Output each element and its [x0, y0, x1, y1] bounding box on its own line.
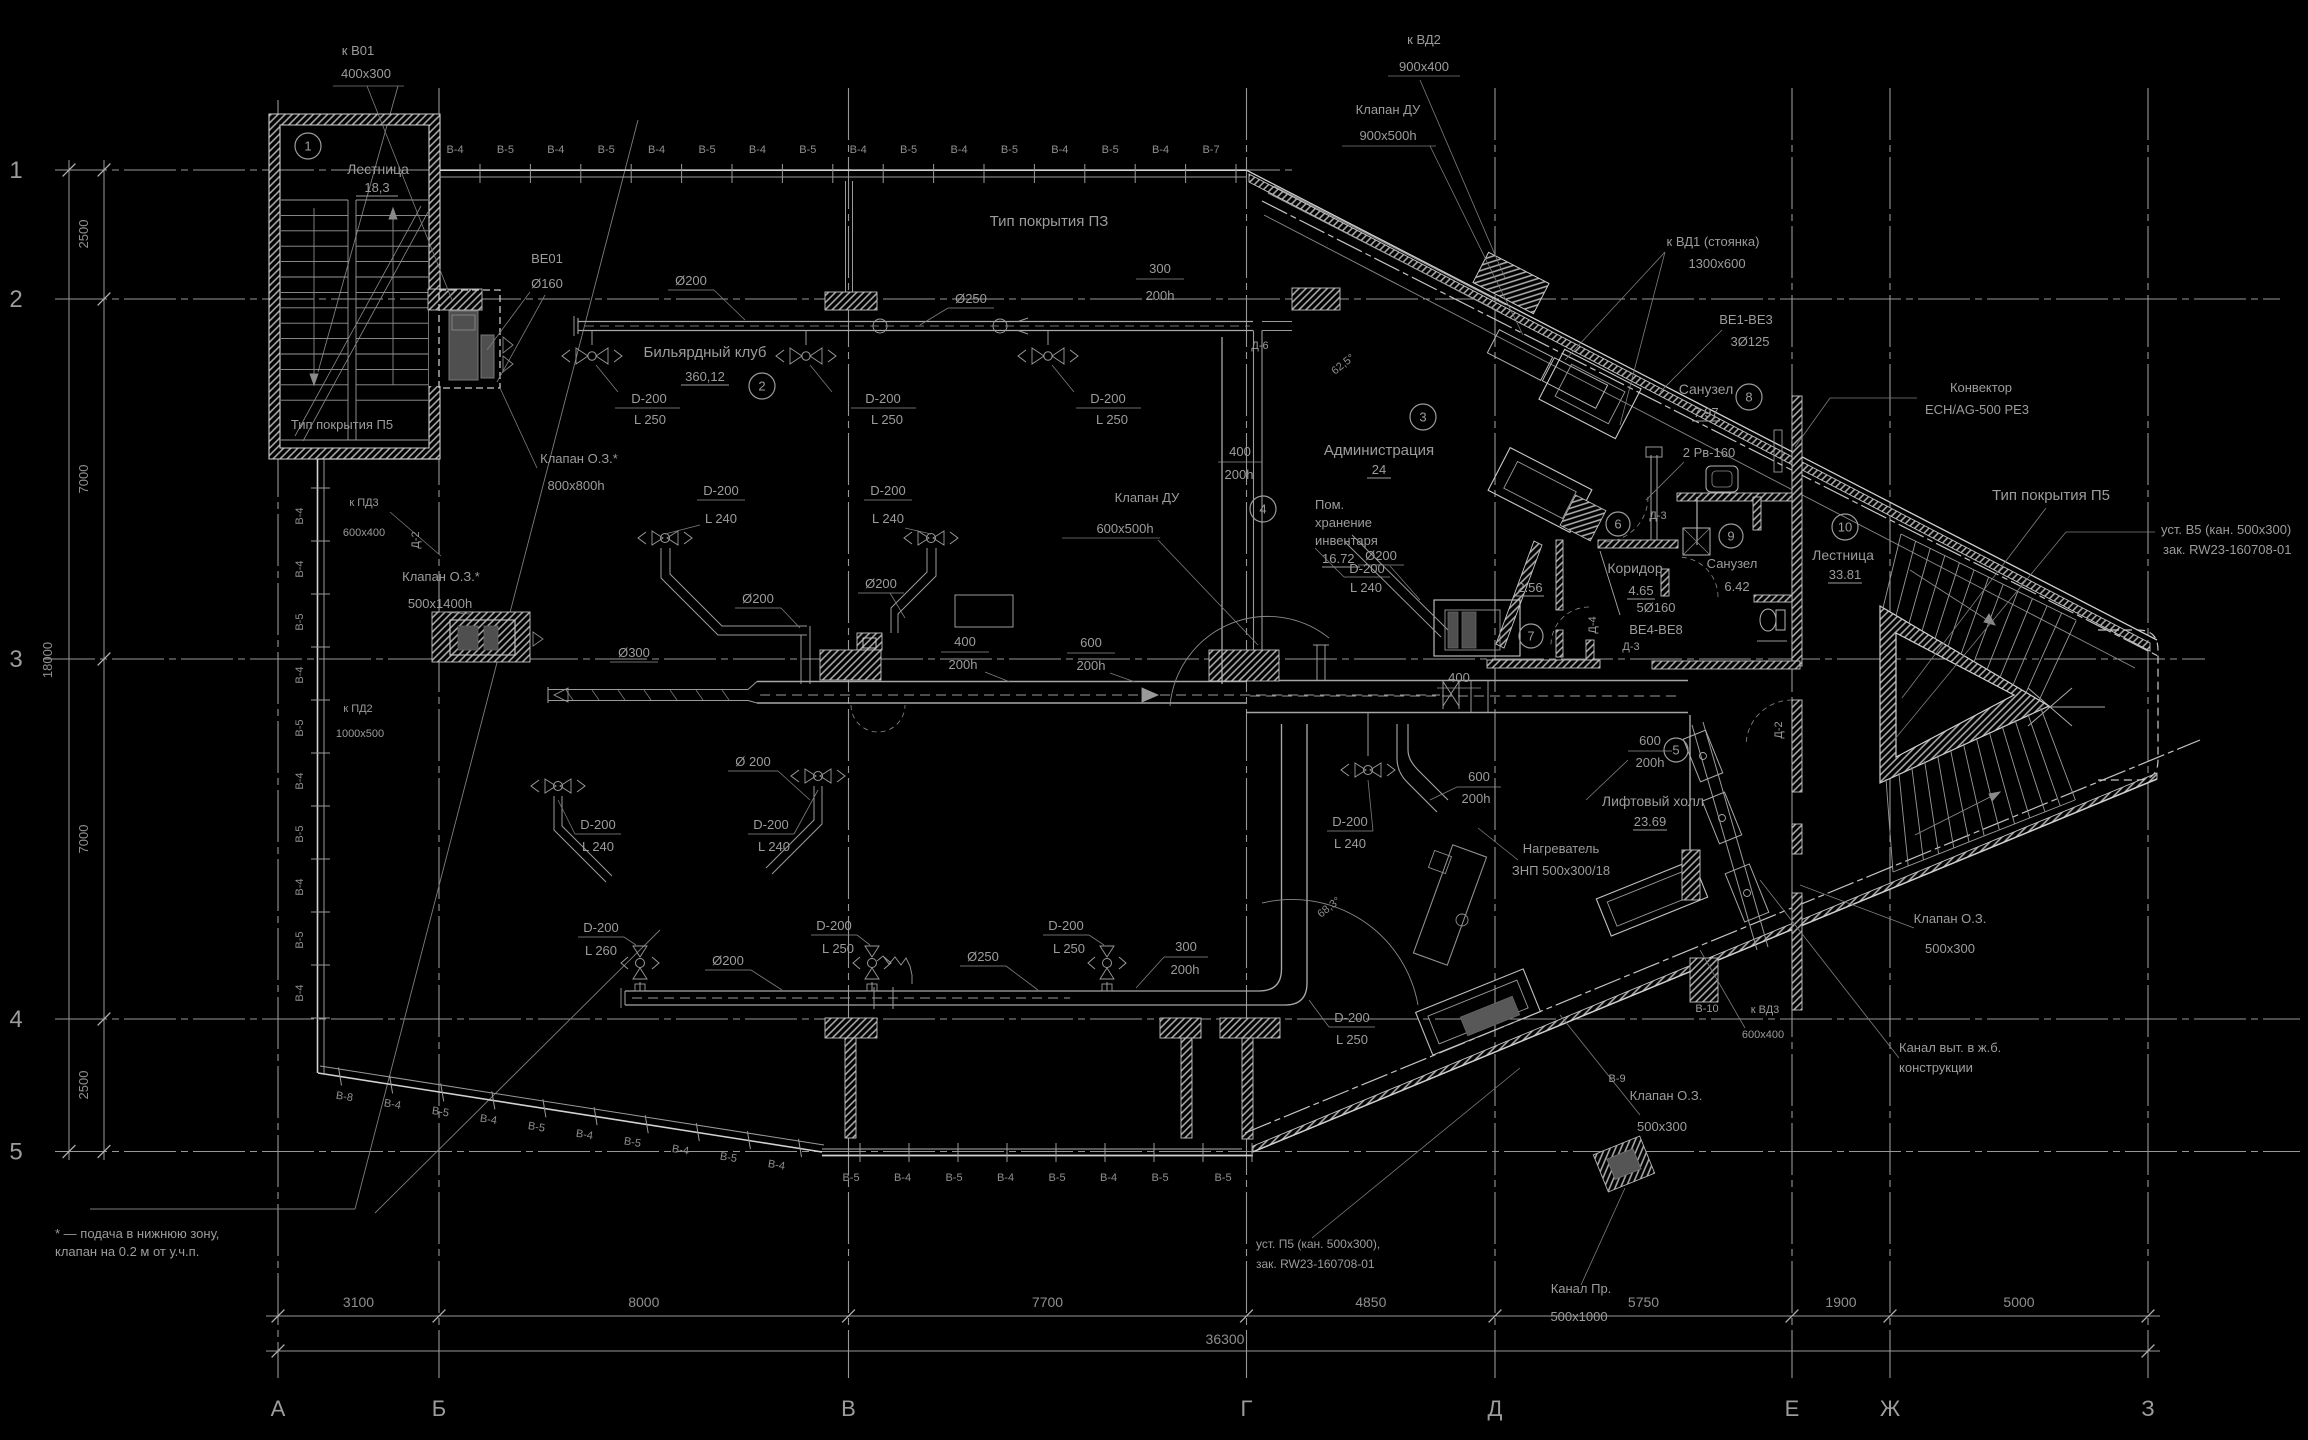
svg-text:В-5: В-5 — [1151, 1172, 1168, 1184]
svg-text:В-4: В-4 — [294, 666, 306, 683]
svg-text:В-9: В-9 — [1608, 1073, 1625, 1085]
svg-text:Ø200: Ø200 — [712, 953, 744, 968]
svg-text:А: А — [271, 1396, 286, 1421]
svg-text:500x1400h: 500x1400h — [408, 596, 472, 611]
svg-text:L 240: L 240 — [758, 839, 790, 854]
svg-text:600: 600 — [1080, 635, 1102, 650]
svg-text:D-200: D-200 — [816, 918, 851, 933]
svg-text:4: 4 — [1259, 502, 1266, 517]
svg-text:* — подача в нижнюю зону,: * — подача в нижнюю зону, — [55, 1226, 219, 1241]
svg-text:7: 7 — [1527, 629, 1534, 644]
svg-text:200h: 200h — [1077, 658, 1106, 673]
svg-text:зак. RW23-160708-01: зак. RW23-160708-01 — [2163, 542, 2291, 557]
svg-text:к ВД2: к ВД2 — [1407, 32, 1441, 47]
svg-text:200h: 200h — [949, 657, 978, 672]
svg-text:L 250: L 250 — [1096, 412, 1128, 427]
svg-text:L 250: L 250 — [1336, 1032, 1368, 1047]
svg-text:33.81: 33.81 — [1829, 567, 1862, 582]
svg-text:Администрация: Администрация — [1324, 442, 1434, 459]
svg-text:Ø200: Ø200 — [675, 273, 707, 288]
svg-text:В-5: В-5 — [698, 144, 715, 156]
svg-text:D-200: D-200 — [753, 817, 788, 832]
svg-text:Д-3: Д-3 — [1622, 641, 1639, 653]
svg-text:В-4: В-4 — [997, 1172, 1014, 1184]
svg-text:400: 400 — [1229, 444, 1251, 459]
svg-text:L 240: L 240 — [872, 511, 904, 526]
svg-text:5: 5 — [9, 1139, 22, 1166]
svg-text:9: 9 — [1727, 529, 1734, 544]
svg-text:D-200: D-200 — [703, 483, 738, 498]
svg-text:500x300: 500x300 — [1925, 941, 1975, 956]
svg-text:Ж: Ж — [1880, 1396, 1901, 1421]
svg-text:Ø200: Ø200 — [865, 576, 897, 591]
svg-text:600x500h: 600x500h — [1096, 521, 1153, 536]
svg-text:конструкции: конструкции — [1899, 1060, 1973, 1075]
svg-text:L 250: L 250 — [871, 412, 903, 427]
svg-text:5750: 5750 — [1628, 1294, 1659, 1310]
svg-text:500x1000: 500x1000 — [1550, 1309, 1607, 1324]
svg-text:Нагреватель: Нагреватель — [1523, 841, 1600, 856]
svg-text:D-200: D-200 — [1332, 814, 1367, 829]
svg-text:L 240: L 240 — [1334, 836, 1366, 851]
svg-text:Ø200: Ø200 — [742, 591, 774, 606]
svg-text:L 250: L 250 — [1053, 941, 1085, 956]
svg-text:4850: 4850 — [1355, 1294, 1386, 1310]
svg-text:L 240: L 240 — [582, 839, 614, 854]
svg-text:D-200: D-200 — [631, 391, 666, 406]
svg-text:Санузел: Санузел — [1707, 556, 1758, 571]
svg-text:В-4: В-4 — [950, 144, 967, 156]
svg-text:В-5: В-5 — [598, 144, 615, 156]
svg-text:В-5: В-5 — [1102, 144, 1119, 156]
svg-text:В-4: В-4 — [850, 144, 867, 156]
svg-text:В-4: В-4 — [294, 984, 306, 1001]
svg-text:уст. П5 (кан. 500x300),: уст. П5 (кан. 500x300), — [1256, 1237, 1380, 1251]
svg-text:В-4: В-4 — [1051, 144, 1068, 156]
svg-text:Тип покрытия ПЗ: Тип покрытия ПЗ — [990, 213, 1109, 230]
svg-text:3Ø125: 3Ø125 — [1730, 334, 1769, 349]
svg-text:В-5: В-5 — [842, 1172, 859, 1184]
svg-text:7700: 7700 — [1032, 1294, 1063, 1310]
svg-text:В-4: В-4 — [294, 878, 306, 895]
svg-text:к ПД3: к ПД3 — [349, 497, 378, 509]
svg-text:2.56: 2.56 — [1517, 580, 1542, 595]
svg-text:L 250: L 250 — [822, 941, 854, 956]
svg-text:уст. В5 (кан. 500x300): уст. В5 (кан. 500x300) — [2161, 522, 2291, 537]
svg-text:В-4: В-4 — [648, 144, 665, 156]
svg-text:2500: 2500 — [76, 220, 91, 249]
svg-text:1: 1 — [9, 157, 22, 184]
svg-text:D-200: D-200 — [583, 920, 618, 935]
svg-text:Лифтовый холл: Лифтовый холл — [1602, 793, 1704, 809]
svg-text:ВЕ4-ВЕ8: ВЕ4-ВЕ8 — [1629, 622, 1682, 637]
svg-text:Тип покрытия П5: Тип покрытия П5 — [291, 417, 393, 432]
svg-text:600x400: 600x400 — [343, 527, 385, 539]
svg-text:В-5: В-5 — [1048, 1172, 1065, 1184]
svg-text:Конвектор: Конвектор — [1950, 380, 2012, 395]
svg-text:D-200: D-200 — [1349, 561, 1384, 576]
svg-text:4: 4 — [9, 1006, 22, 1033]
svg-text:В-4: В-4 — [446, 144, 463, 156]
svg-text:400x300: 400x300 — [341, 66, 391, 81]
svg-text:Коридор: Коридор — [1607, 560, 1663, 576]
svg-text:В-5: В-5 — [900, 144, 917, 156]
svg-text:В-5: В-5 — [294, 931, 306, 948]
svg-text:Ø250: Ø250 — [967, 949, 999, 964]
svg-text:В-4: В-4 — [547, 144, 564, 156]
svg-text:зак. RW23-160708-01: зак. RW23-160708-01 — [1256, 1257, 1375, 1271]
svg-text:Санузел: Санузел — [1679, 381, 1734, 397]
svg-text:4.65: 4.65 — [1628, 583, 1653, 598]
svg-text:Клапан О.З.: Клапан О.З. — [1630, 1088, 1703, 1103]
svg-text:В-5: В-5 — [945, 1172, 962, 1184]
svg-text:В-5: В-5 — [294, 613, 306, 630]
svg-text:Ø200: Ø200 — [1365, 548, 1397, 563]
svg-text:200h: 200h — [1171, 962, 1200, 977]
svg-text:ВЕ1-ВЕ3: ВЕ1-ВЕ3 — [1719, 312, 1772, 327]
svg-text:Д-3: Д-3 — [1649, 510, 1666, 522]
svg-text:3: 3 — [1419, 410, 1426, 425]
svg-text:Ø 200: Ø 200 — [735, 754, 770, 769]
svg-text:Клапан О.З.*: Клапан О.З.* — [402, 569, 480, 584]
svg-text:8000: 8000 — [628, 1294, 659, 1310]
svg-text:Ø250: Ø250 — [955, 291, 987, 306]
svg-text:В-5: В-5 — [1001, 144, 1018, 156]
svg-text:В: В — [841, 1396, 856, 1421]
svg-text:5: 5 — [1672, 743, 1679, 758]
svg-text:к ВД1 (стоянка): к ВД1 (стоянка) — [1667, 234, 1760, 249]
svg-text:В-4: В-4 — [749, 144, 766, 156]
svg-text:Д-4: Д-4 — [1587, 616, 1599, 633]
svg-text:360,12: 360,12 — [685, 369, 725, 384]
svg-text:L 260: L 260 — [585, 943, 617, 958]
svg-text:Д-6: Д-6 — [1251, 340, 1268, 352]
svg-text:2: 2 — [9, 286, 22, 313]
svg-text:ECH/AG-500 РЕ3: ECH/AG-500 РЕ3 — [1925, 402, 2029, 417]
svg-text:5Ø160: 5Ø160 — [1636, 600, 1675, 615]
svg-text:36300: 36300 — [1206, 1331, 1245, 1347]
svg-text:D-200: D-200 — [1090, 391, 1125, 406]
svg-text:3: 3 — [9, 646, 22, 673]
svg-text:Клапан ДУ: Клапан ДУ — [1115, 490, 1180, 505]
svg-text:7000: 7000 — [76, 465, 91, 494]
svg-text:Канал выт. в ж.б.: Канал выт. в ж.б. — [1899, 1040, 2001, 1055]
svg-text:В-4: В-4 — [1152, 144, 1169, 156]
svg-text:1: 1 — [304, 139, 311, 154]
svg-text:Тип покрытия П5: Тип покрытия П5 — [1992, 487, 2110, 504]
svg-text:Пом.: Пом. — [1315, 497, 1344, 512]
svg-text:2: 2 — [758, 379, 765, 394]
svg-text:3100: 3100 — [343, 1294, 374, 1310]
svg-text:600x400: 600x400 — [1742, 1029, 1784, 1041]
svg-text:900x400: 900x400 — [1399, 59, 1449, 74]
svg-text:600: 600 — [1639, 733, 1661, 748]
svg-text:Бильярдный клуб: Бильярдный клуб — [643, 344, 766, 361]
svg-text:6: 6 — [1614, 517, 1621, 532]
svg-text:D-200: D-200 — [865, 391, 900, 406]
svg-text:2 Рв-160: 2 Рв-160 — [1683, 445, 1735, 460]
svg-text:к ПД2: к ПД2 — [343, 703, 372, 715]
svg-text:600: 600 — [1468, 769, 1490, 784]
svg-text:D-200: D-200 — [1048, 918, 1083, 933]
svg-text:L 240: L 240 — [705, 511, 737, 526]
svg-text:1000x500: 1000x500 — [336, 728, 384, 740]
svg-text:L 250: L 250 — [634, 412, 666, 427]
svg-text:Е: Е — [1785, 1396, 1800, 1421]
svg-text:1900: 1900 — [1825, 1294, 1856, 1310]
svg-text:Д: Д — [1488, 1396, 1503, 1421]
svg-text:8: 8 — [1745, 390, 1752, 405]
svg-text:800x800h: 800x800h — [547, 478, 604, 493]
svg-text:В-5: В-5 — [799, 144, 816, 156]
svg-text:к ВД3: к ВД3 — [1751, 1004, 1780, 1016]
svg-text:200h: 200h — [1225, 467, 1254, 482]
svg-text:300: 300 — [1175, 939, 1197, 954]
svg-text:В-4: В-4 — [294, 560, 306, 577]
svg-text:500x300: 500x300 — [1637, 1119, 1687, 1134]
svg-text:Д-2: Д-2 — [410, 531, 422, 548]
svg-text:Клапан О.З.*: Клапан О.З.* — [540, 451, 618, 466]
svg-text:400: 400 — [1448, 670, 1470, 685]
svg-text:Клапан ДУ: Клапан ДУ — [1356, 102, 1421, 117]
svg-text:24: 24 — [1372, 462, 1386, 477]
svg-text:5000: 5000 — [2003, 1294, 2034, 1310]
svg-text:Б: Б — [432, 1396, 446, 1421]
svg-text:инвентаря: инвентаря — [1315, 533, 1378, 548]
svg-text:23.69: 23.69 — [1634, 814, 1667, 829]
svg-text:1300x600: 1300x600 — [1688, 256, 1745, 271]
svg-text:ЗНП 500x300/18: ЗНП 500x300/18 — [1512, 863, 1610, 878]
svg-text:Д-2: Д-2 — [1773, 721, 1785, 738]
svg-text:D-200: D-200 — [580, 817, 615, 832]
svg-text:7.97: 7.97 — [1693, 405, 1718, 420]
svg-text:200h: 200h — [1462, 791, 1491, 806]
svg-text:200h: 200h — [1636, 755, 1665, 770]
svg-text:В-5: В-5 — [294, 719, 306, 736]
svg-text:Лестница: Лестница — [1812, 547, 1874, 563]
svg-text:клапан на 0.2 м от у.ч.п.: клапан на 0.2 м от у.ч.п. — [55, 1244, 199, 1259]
svg-text:Г: Г — [1241, 1396, 1253, 1421]
svg-text:300: 300 — [1149, 261, 1171, 276]
svg-text:D-200: D-200 — [870, 483, 905, 498]
svg-text:7000: 7000 — [76, 825, 91, 854]
svg-text:900x500h: 900x500h — [1359, 128, 1416, 143]
svg-text:Ø300: Ø300 — [618, 645, 650, 660]
svg-text:6.42: 6.42 — [1724, 579, 1749, 594]
svg-text:к В01: к В01 — [342, 43, 374, 58]
svg-text:16.72: 16.72 — [1322, 551, 1355, 566]
svg-text:10: 10 — [1838, 520, 1852, 535]
svg-text:Ø160: Ø160 — [531, 276, 563, 291]
svg-text:18,3: 18,3 — [364, 180, 389, 195]
svg-text:В-5: В-5 — [497, 144, 514, 156]
svg-text:В-4: В-4 — [294, 772, 306, 789]
svg-text:Канал Пр.: Канал Пр. — [1551, 1281, 1612, 1296]
svg-text:В-4: В-4 — [294, 507, 306, 524]
svg-text:хранение: хранение — [1315, 515, 1372, 530]
svg-text:В-5: В-5 — [294, 825, 306, 842]
svg-text:L 240: L 240 — [1350, 580, 1382, 595]
svg-text:200h: 200h — [1146, 288, 1175, 303]
svg-text:В-5: В-5 — [1214, 1172, 1231, 1184]
svg-text:D-200: D-200 — [1334, 1010, 1369, 1025]
svg-text:В-4: В-4 — [1100, 1172, 1117, 1184]
svg-text:З: З — [2141, 1396, 2154, 1421]
svg-text:В-10: В-10 — [1695, 1003, 1718, 1015]
svg-text:В-4: В-4 — [894, 1172, 911, 1184]
svg-text:В-7: В-7 — [1202, 144, 1219, 156]
svg-text:18000: 18000 — [40, 642, 55, 678]
svg-text:Клапан О.З.: Клапан О.З. — [1914, 911, 1987, 926]
svg-text:400: 400 — [954, 634, 976, 649]
svg-text:2500: 2500 — [76, 1071, 91, 1100]
svg-text:ВЕ01: ВЕ01 — [531, 251, 563, 266]
